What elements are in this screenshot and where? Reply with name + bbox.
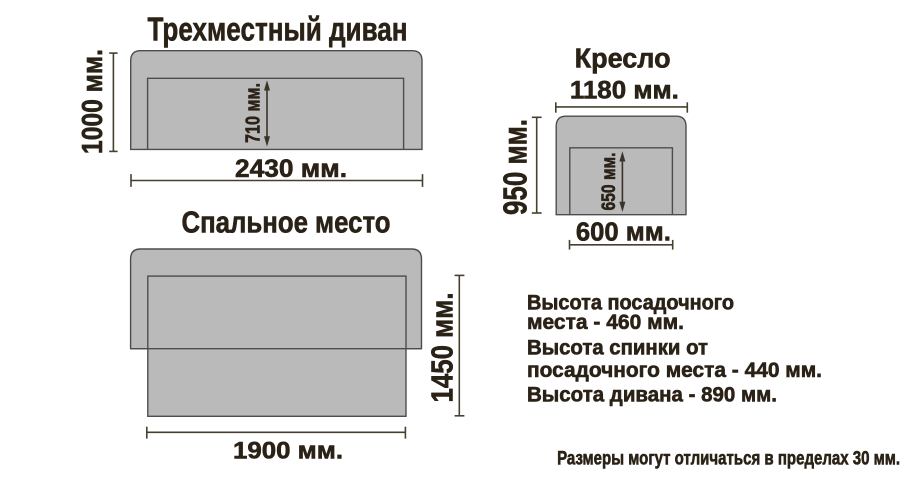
svg-text:1000 мм.: 1000 мм. — [77, 49, 109, 154]
svg-text:2430 мм.: 2430 мм. — [235, 155, 347, 183]
svg-text:места - 460 мм.: места - 460 мм. — [527, 311, 684, 334]
svg-text:Высота спинки от: Высота спинки от — [527, 337, 708, 360]
svg-text:Трехместный диван: Трехместный диван — [148, 12, 408, 49]
svg-text:950 мм.: 950 мм. — [497, 119, 534, 215]
svg-text:Спальное место: Спальное место — [182, 205, 391, 239]
svg-text:1180 мм.: 1180 мм. — [570, 76, 679, 104]
svg-text:600 мм.: 600 мм. — [576, 218, 671, 246]
svg-text:1450 мм.: 1450 мм. — [426, 293, 460, 403]
svg-text:посадочного места - 440 мм.: посадочного места - 440 мм. — [527, 359, 822, 382]
svg-text:Размеры могут отличаться в пре: Размеры могут отличаться в пределах 30 м… — [557, 449, 900, 470]
svg-text:710 мм.: 710 мм. — [242, 83, 265, 143]
svg-text:Кресло: Кресло — [575, 43, 671, 74]
svg-text:Высота дивана - 890 мм.: Высота дивана - 890 мм. — [527, 384, 777, 407]
svg-text:650 мм.: 650 мм. — [598, 153, 620, 211]
svg-text:1900 мм.: 1900 мм. — [233, 437, 343, 464]
